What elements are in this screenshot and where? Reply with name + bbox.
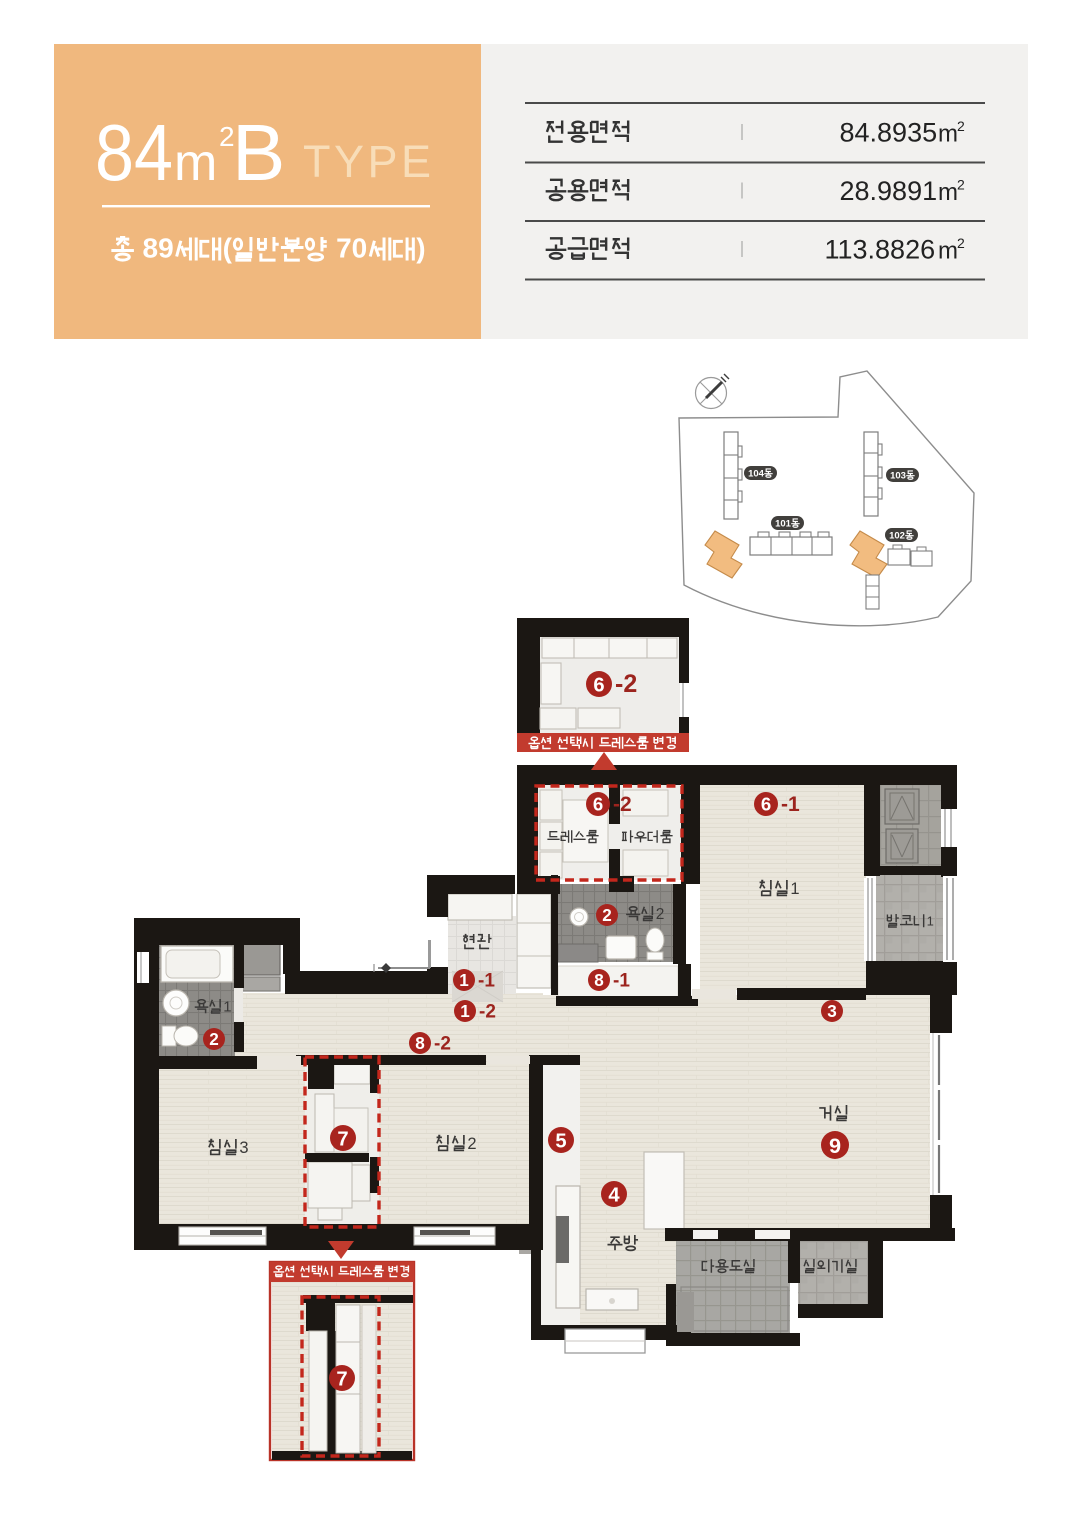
svg-text:B: B [232, 108, 285, 197]
svg-text:84.8935: 84.8935 [840, 118, 938, 148]
svg-text:m: m [174, 134, 217, 192]
svg-text:-2: -2 [434, 1033, 451, 1054]
svg-text:-1: -1 [781, 793, 800, 816]
svg-text:2: 2 [209, 1030, 219, 1049]
svg-text:1: 1 [460, 1002, 470, 1021]
svg-text:m: m [938, 179, 958, 206]
svg-text:8: 8 [594, 971, 604, 990]
svg-text:m: m [938, 121, 958, 148]
svg-text:103: 103 [890, 470, 906, 481]
svg-text:m: m [938, 238, 958, 265]
svg-text:-2: -2 [615, 670, 637, 698]
svg-text:2: 2 [602, 906, 612, 925]
svg-text:5: 5 [555, 1130, 566, 1152]
svg-text:70: 70 [336, 233, 367, 264]
svg-text:-1: -1 [613, 970, 630, 991]
svg-text:-2: -2 [479, 1001, 496, 1022]
svg-text:2: 2 [957, 177, 965, 193]
svg-text:2: 2 [656, 906, 665, 923]
svg-text:(: ( [223, 233, 233, 264]
svg-text:-2: -2 [613, 793, 632, 816]
svg-text:2: 2 [957, 235, 965, 251]
svg-text:1: 1 [223, 999, 231, 1016]
svg-text:1: 1 [459, 971, 469, 990]
svg-text:3: 3 [239, 1139, 248, 1157]
svg-text:1: 1 [790, 880, 799, 898]
svg-text:89: 89 [143, 233, 174, 264]
svg-text:7: 7 [336, 1368, 347, 1390]
svg-text:9: 9 [829, 1133, 841, 1158]
svg-text:6: 6 [761, 794, 771, 815]
svg-text:113.8826: 113.8826 [825, 235, 936, 265]
svg-text:102: 102 [889, 530, 905, 541]
svg-text:-1: -1 [478, 970, 495, 991]
svg-text:TYPE: TYPE [303, 136, 435, 187]
svg-text:6: 6 [593, 794, 603, 815]
svg-text:2: 2 [467, 1135, 476, 1153]
svg-text:101: 101 [775, 518, 792, 529]
svg-text:84: 84 [95, 108, 173, 197]
svg-text:6: 6 [593, 674, 604, 696]
svg-text:1: 1 [927, 914, 934, 929]
svg-text:8: 8 [415, 1034, 425, 1053]
svg-text:28.9891: 28.9891 [840, 176, 938, 206]
svg-text:): ) [416, 233, 425, 264]
svg-text:3: 3 [827, 1002, 837, 1021]
svg-text:2: 2 [957, 118, 965, 134]
svg-text:7: 7 [337, 1128, 348, 1150]
svg-text:104: 104 [748, 468, 765, 479]
svg-text:4: 4 [608, 1184, 620, 1206]
